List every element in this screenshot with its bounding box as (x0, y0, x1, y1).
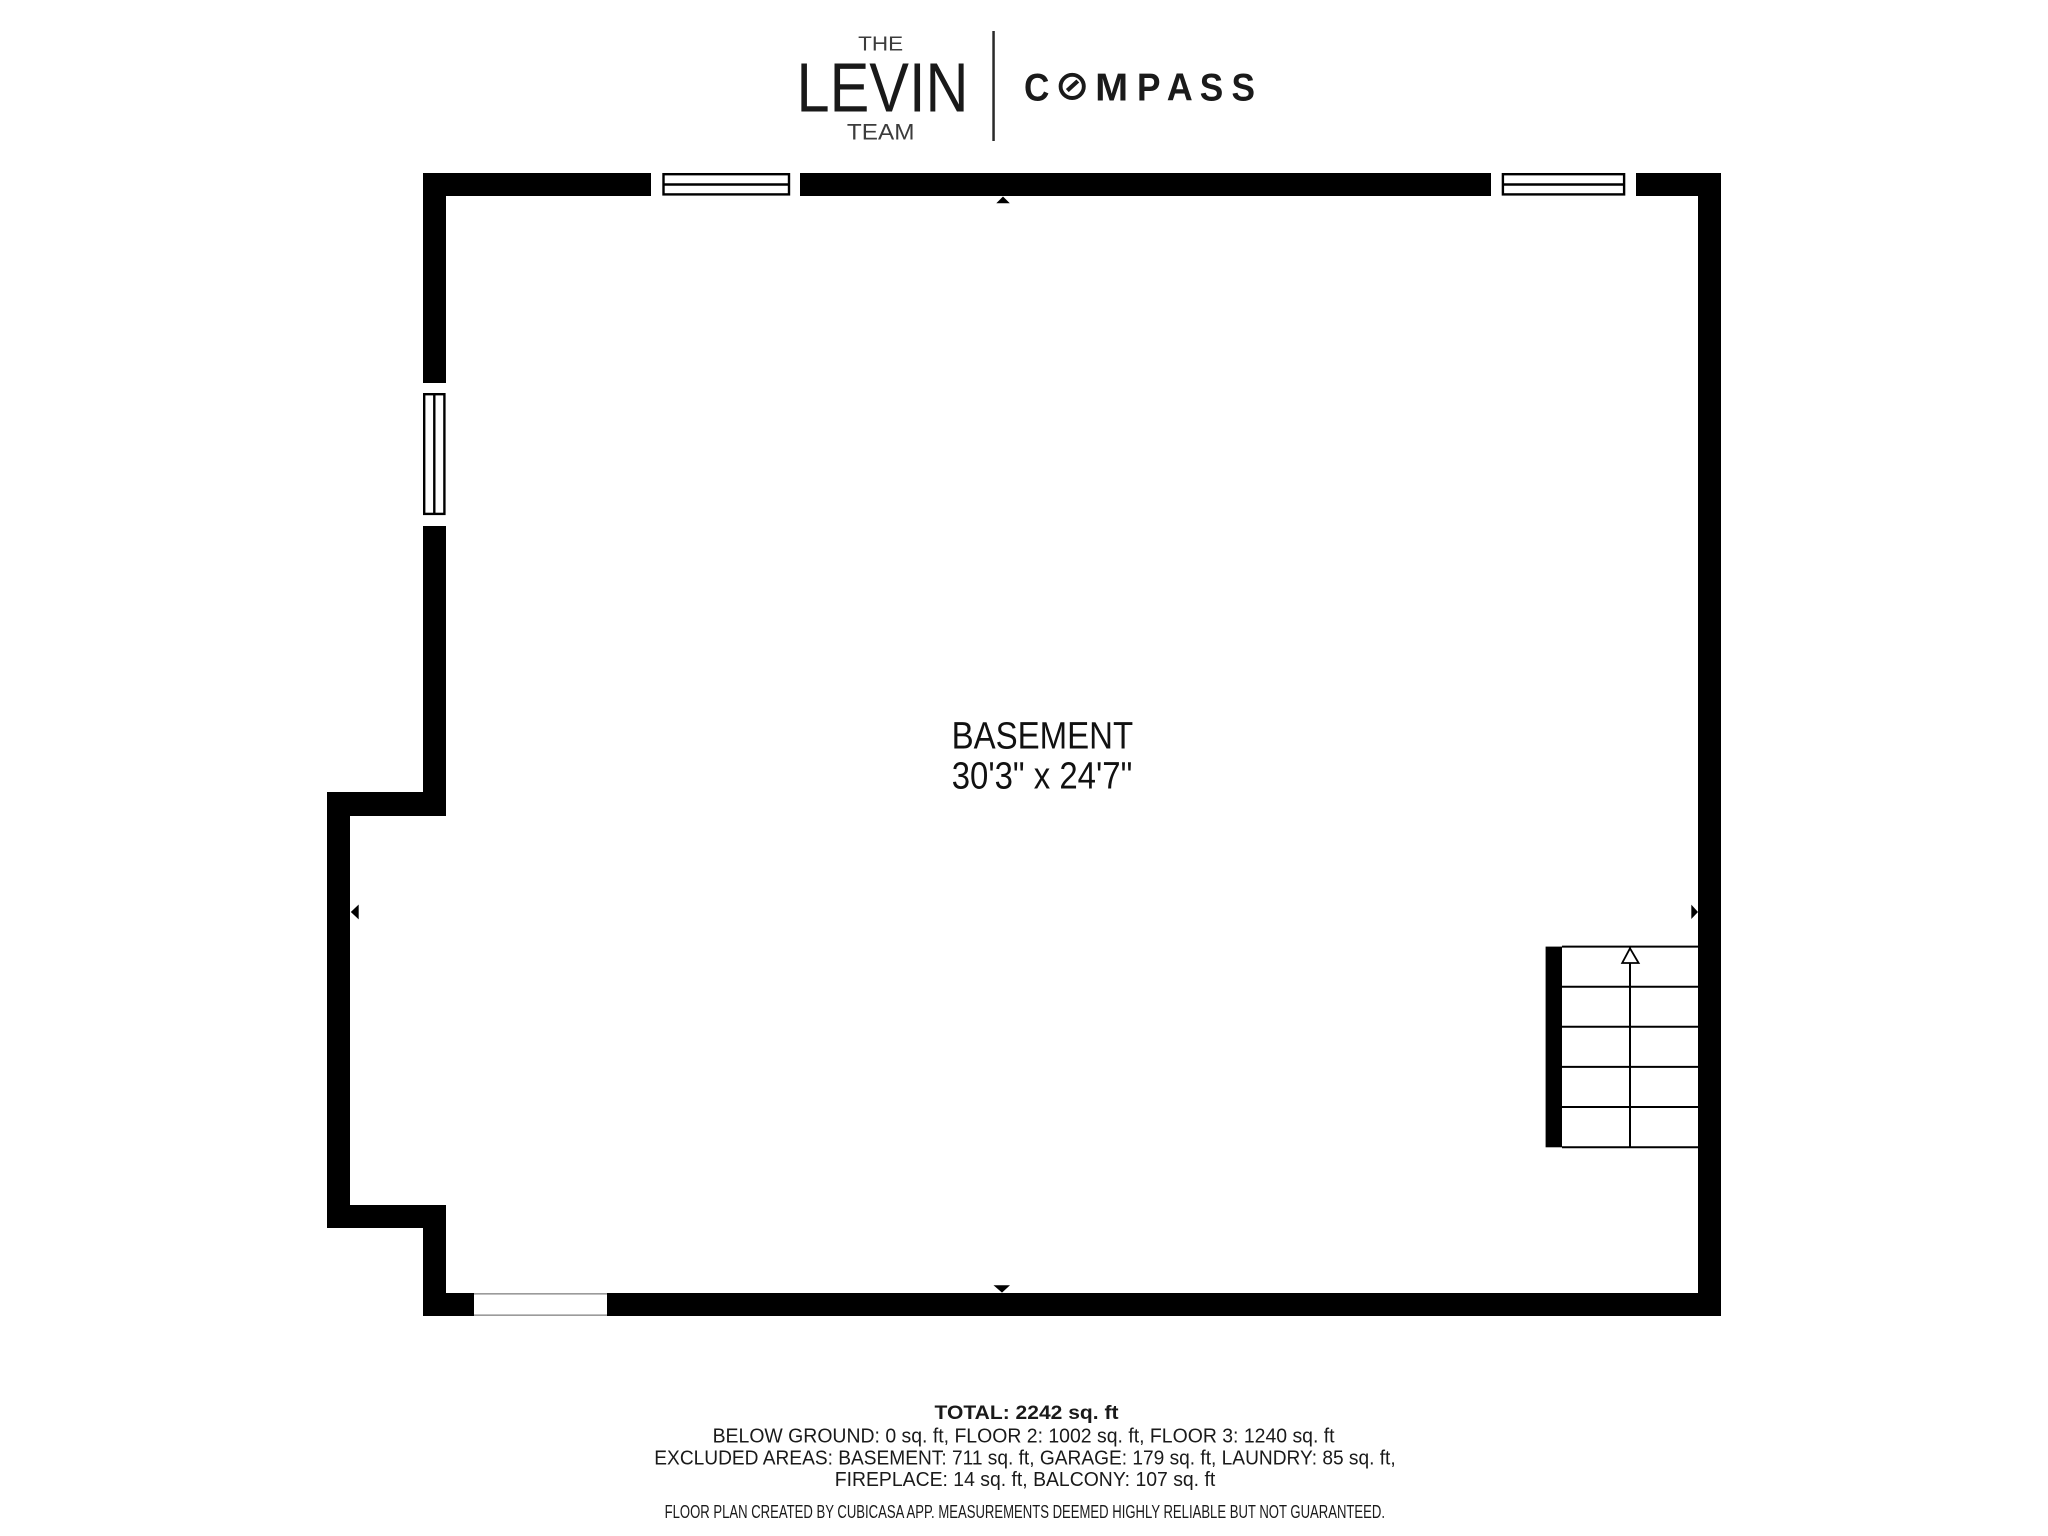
svg-text:FIREPLACE: 14 sq. ft, BALCONY:: FIREPLACE: 14 sq. ft, BALCONY: 107 sq. f… (835, 1469, 1216, 1491)
svg-text:S: S (1200, 67, 1224, 110)
svg-text:S: S (1232, 67, 1256, 110)
svg-text:BASEMENT: BASEMENT (952, 716, 1134, 758)
svg-text:30'3" x 24'7": 30'3" x 24'7" (952, 756, 1133, 798)
svg-text:M: M (1095, 67, 1128, 110)
svg-text:FLOOR PLAN CREATED BY CUBICASA: FLOOR PLAN CREATED BY CUBICASA APP. MEAS… (665, 1501, 1385, 1522)
svg-text:P: P (1137, 67, 1161, 110)
svg-text:EXCLUDED AREAS: BASEMENT: 711: EXCLUDED AREAS: BASEMENT: 711 sq. ft, GA… (654, 1447, 1395, 1469)
svg-text:TOTAL: 2242 sq. ft: TOTAL: 2242 sq. ft (935, 1402, 1120, 1424)
svg-text:A: A (1167, 67, 1193, 110)
svg-text:LEVIN: LEVIN (797, 49, 969, 127)
svg-text:C: C (1024, 67, 1049, 110)
svg-text:TEAM: TEAM (847, 120, 915, 145)
svg-text:BELOW GROUND: 0 sq. ft, FLOOR: BELOW GROUND: 0 sq. ft, FLOOR 2: 1002 sq… (713, 1426, 1335, 1448)
